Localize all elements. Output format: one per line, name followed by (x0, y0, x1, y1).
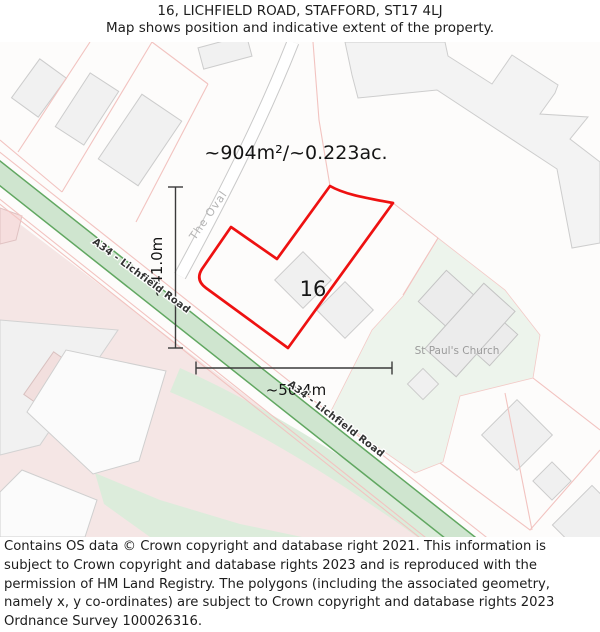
church-label: St Paul's Church (415, 345, 500, 357)
map-svg: ~904m²/~0.223ac. ~41.0m ~50.4m 16 The Ov… (0, 42, 600, 537)
attribution-text: Contains OS data © Crown copyright and d… (0, 537, 600, 632)
map-canvas: ~904m²/~0.223ac. ~41.0m ~50.4m 16 The Ov… (0, 42, 600, 537)
page-title: 16, LICHFIELD ROAD, STAFFORD, ST17 4LJ (0, 0, 600, 20)
page-subtitle: Map shows position and indicative extent… (0, 20, 600, 37)
property-number-label: 16 (300, 277, 327, 301)
page-header: 16, LICHFIELD ROAD, STAFFORD, ST17 4LJ M… (0, 0, 600, 42)
area-label: ~904m²/~0.223ac. (204, 142, 387, 164)
